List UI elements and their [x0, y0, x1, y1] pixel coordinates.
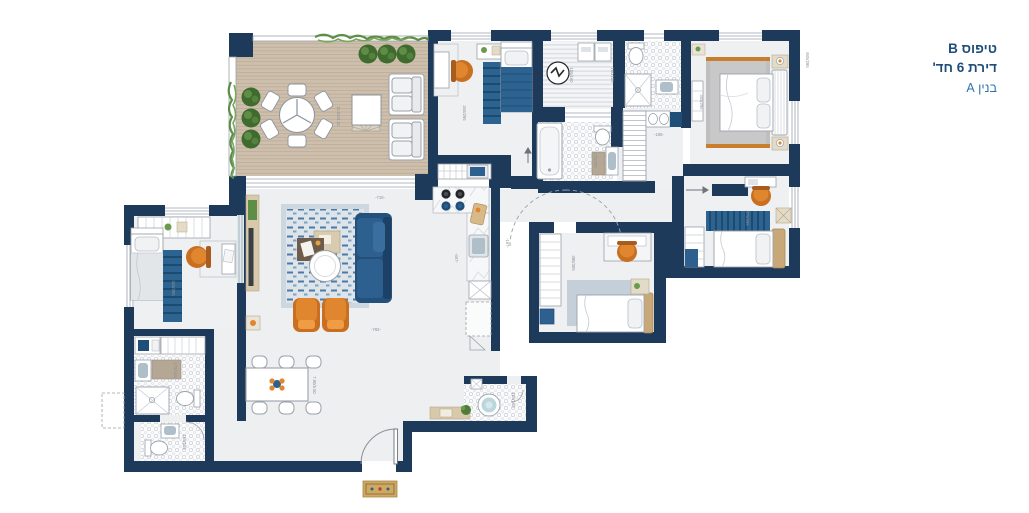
svg-text:375/295: 375/295 [745, 210, 750, 226]
svg-text:10.05/3.10: 10.05/3.10 [336, 106, 341, 126]
svg-text:בנין A: בנין A [966, 81, 997, 95]
svg-text:-782-: -782- [371, 327, 381, 332]
svg-text:7.90/5.50: 7.90/5.50 [312, 376, 317, 394]
svg-text:845/295: 845/295 [805, 52, 810, 68]
svg-text:380/305: 380/305 [571, 255, 576, 271]
svg-text:175/235: 175/235 [593, 152, 598, 168]
svg-text:דירת 6 חד': דירת 6 חד' [932, 60, 997, 75]
svg-text:-165-: -165- [654, 132, 664, 137]
svg-text:-710-: -710- [375, 195, 385, 200]
svg-text:טיפוס B: טיפוס B [948, 41, 997, 56]
svg-text:345/295: 345/295 [699, 94, 704, 110]
svg-text:160/105: 160/105 [610, 67, 615, 83]
svg-text:-167-: -167- [505, 238, 510, 248]
svg-text:175/165: 175/165 [173, 362, 178, 378]
svg-text:345/295: 345/295 [462, 105, 467, 121]
svg-text:105/160: 105/160 [511, 392, 516, 408]
svg-text:345/295: 345/295 [171, 280, 176, 296]
svg-text:-467-: -467- [454, 253, 459, 263]
svg-text:165/105: 165/105 [182, 434, 187, 450]
svg-text:105/160: 105/160 [569, 67, 574, 83]
